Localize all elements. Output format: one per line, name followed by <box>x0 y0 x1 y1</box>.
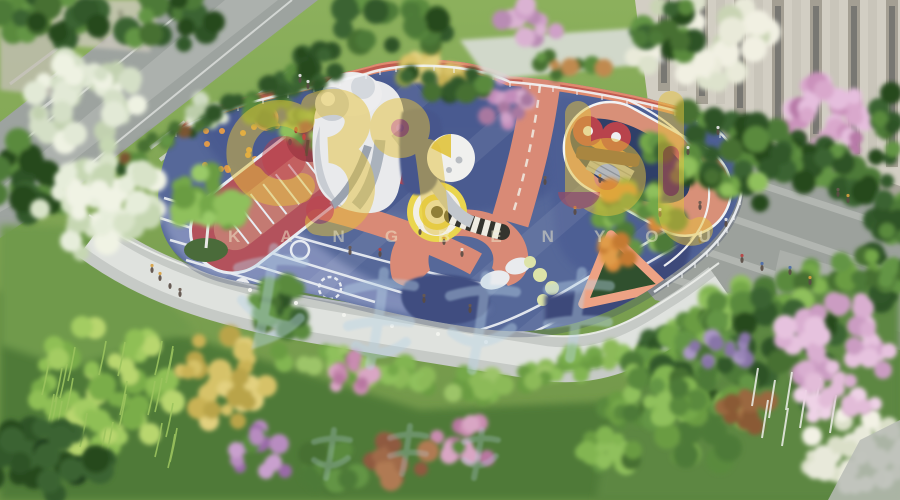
svg-text:KANGBENYOU: KANGBENYOU <box>228 227 751 246</box>
